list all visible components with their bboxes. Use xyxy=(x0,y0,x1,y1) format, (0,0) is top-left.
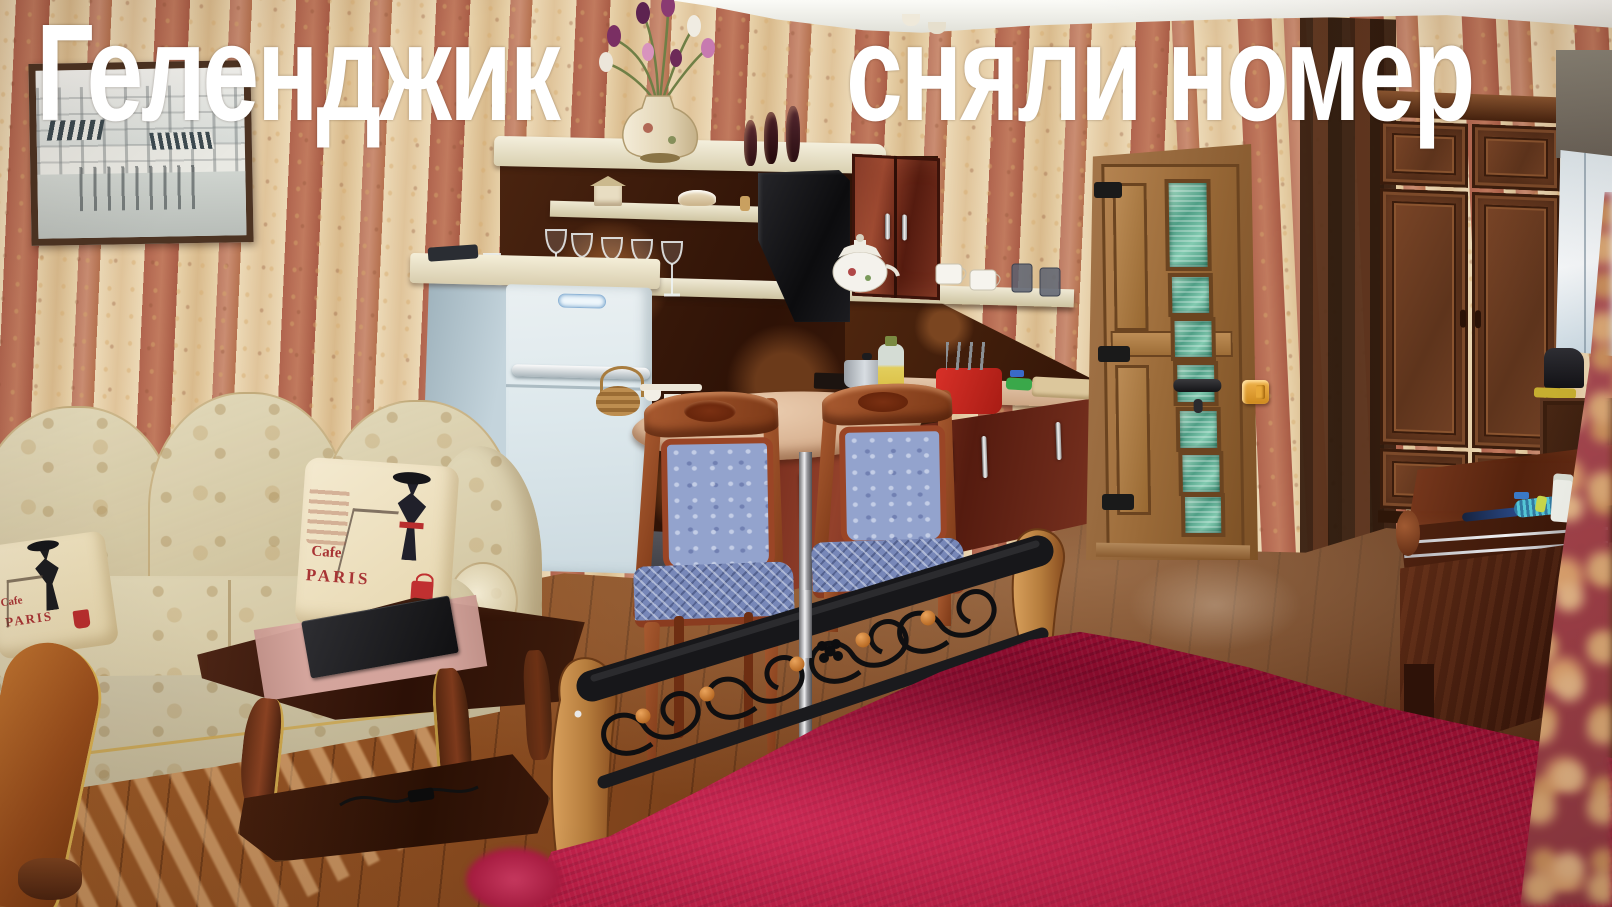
table-pole-over-rail xyxy=(799,590,812,658)
blanket-tuft xyxy=(466,848,562,907)
room-photo: Cafe PARIS Cafe PARIS xyxy=(0,0,1612,907)
title-left: Геленджик xyxy=(36,4,559,142)
title-right: сняли номер xyxy=(846,4,1473,142)
